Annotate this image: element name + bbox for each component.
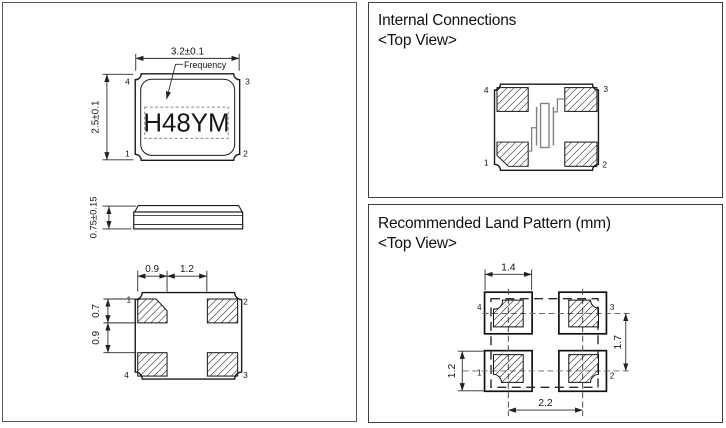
pin-label-1: 1 <box>125 148 130 158</box>
pad-2 <box>565 142 597 166</box>
package-outline-drawing: 3.2±0.1 2.5±0.1 Frequency H48YM 4 3 1 2 <box>3 3 356 421</box>
dim-gap-height-label: 0.9 <box>91 330 102 344</box>
pad-4 <box>138 353 167 376</box>
frequency-callout-label: Frequency <box>184 60 227 70</box>
dim-pad-width-label: 1.4 <box>501 262 516 273</box>
pin-label-3: 3 <box>610 303 615 312</box>
package-outline-panel: 3.2±0.1 2.5±0.1 Frequency H48YM 4 3 1 2 <box>2 2 357 422</box>
land-pattern-panel: Recommended Land Pattern (mm)<Top View> <box>368 204 723 423</box>
pin-label-3: 3 <box>243 370 248 380</box>
pin-label-1: 1 <box>484 157 489 167</box>
pad-3 <box>207 353 237 376</box>
dim-pad-height-label: 0.7 <box>91 304 102 318</box>
marking-text: H48YM <box>143 109 229 137</box>
pad-2 <box>207 299 237 323</box>
dim-pad-height-label: 1.2 <box>447 364 458 379</box>
dim-thickness-label: 0.75±0.15 <box>88 197 99 239</box>
pin-label-4: 4 <box>124 370 129 380</box>
pin-label-4: 4 <box>484 85 489 95</box>
crystal-element <box>541 103 549 147</box>
pin-label-2: 2 <box>243 296 248 306</box>
package-top-view: 3.2±0.1 2.5±0.1 Frequency H48YM 4 3 1 2 <box>90 46 250 160</box>
internal-connections-drawing: 4 3 1 2 <box>369 3 722 197</box>
dim-extension-lines <box>102 206 136 229</box>
pad-4 <box>497 88 528 112</box>
dim-pad-width-label: 0.9 <box>145 264 159 275</box>
pin-label-1: 1 <box>127 294 132 304</box>
pin-label-2: 2 <box>602 159 607 169</box>
dim-horizontal-pitch-label: 2.2 <box>538 398 553 409</box>
pin-label-4: 4 <box>477 303 482 312</box>
dim-height-label: 2.5±0.1 <box>90 100 101 134</box>
land-pattern: 1.4 1.2 1.7 2.2 4 3 1 2 <box>447 262 630 416</box>
pin-label-3: 3 <box>245 77 250 87</box>
dim-gap-width-label: 1.2 <box>180 264 194 275</box>
lid-profile <box>135 206 242 212</box>
pin-label-3: 3 <box>603 84 608 94</box>
package-side-view: 0.75±0.15 <box>88 197 242 239</box>
pin-label-1: 1 <box>477 368 482 377</box>
package-bottom-view: 0.9 1.2 0.7 0.9 1 2 4 3 <box>91 264 248 380</box>
dim-vertical-pitch-label: 1.7 <box>613 335 624 350</box>
pin-label-2: 2 <box>610 371 614 380</box>
land-pattern-drawing: 1.4 1.2 1.7 2.2 4 3 1 2 <box>369 205 722 422</box>
pin-label-4: 4 <box>125 77 130 87</box>
dim-width-label: 3.2±0.1 <box>171 46 205 57</box>
base-profile <box>134 212 243 229</box>
crystal-datasheet-page: 3.2±0.1 2.5±0.1 Frequency H48YM 4 3 1 2 <box>0 0 726 428</box>
internal-connections-panel: Internal Connections<Top View> <box>368 2 723 198</box>
pad-3 <box>565 88 597 112</box>
pin-label-2: 2 <box>243 148 248 158</box>
internal-connections-package: 4 3 1 2 <box>484 84 609 170</box>
